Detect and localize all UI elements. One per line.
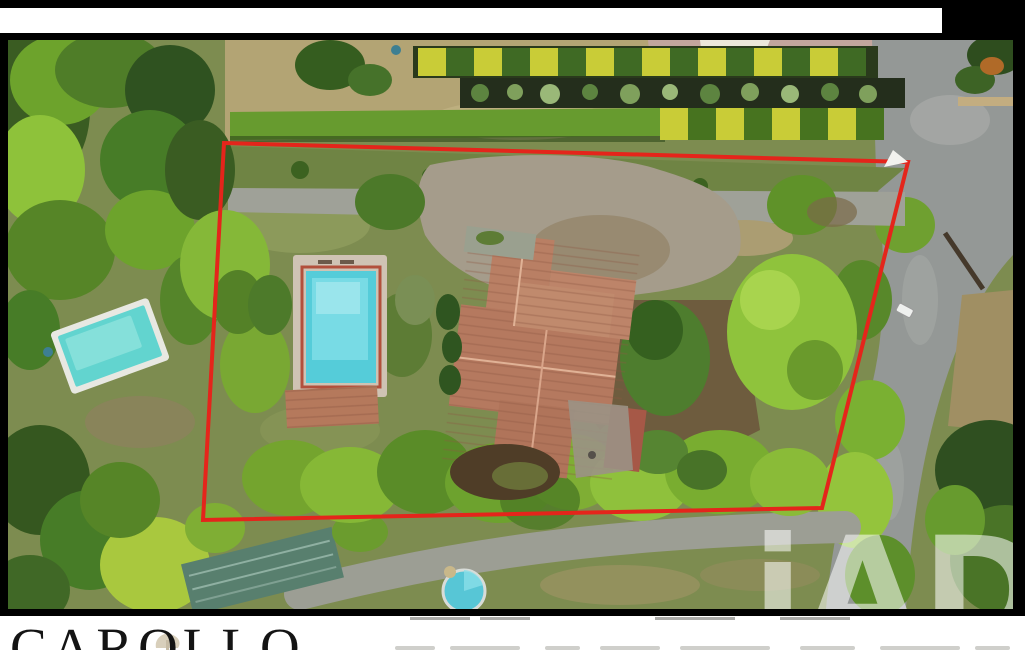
cropped-text-artifact <box>480 617 530 620</box>
top-band-right-black <box>942 8 1025 33</box>
cropped-text-top <box>395 646 435 650</box>
aerial-photo: iAD <box>8 40 1013 609</box>
watermark-logo: iAD <box>752 518 1013 609</box>
photo-left-frame-border <box>0 33 8 616</box>
cropped-text-top <box>450 646 520 650</box>
cropped-text-top <box>975 646 1010 650</box>
main-pool <box>293 255 387 397</box>
photo-top-frame-line <box>0 33 1025 40</box>
bottom-white-band: CAROLLO <box>0 616 1025 650</box>
top-white-band <box>0 8 942 33</box>
agency-name: CAROLLO <box>10 620 305 650</box>
cropped-text-artifact <box>655 617 735 620</box>
cropped-text-artifact <box>780 617 850 620</box>
cropped-text-top <box>680 646 770 650</box>
long-hedge <box>230 108 662 140</box>
top-black-bar <box>0 0 1025 8</box>
photo-bottom-frame-line <box>0 609 1025 616</box>
photo-right-frame-border <box>1013 33 1025 616</box>
pergola-roof <box>285 386 379 429</box>
cropped-text-top <box>800 646 855 650</box>
cropped-text-top <box>880 646 960 650</box>
cropped-text-top <box>545 646 580 650</box>
courtyard <box>568 400 633 478</box>
cropped-text-artifact <box>410 617 470 620</box>
cropped-text-top <box>600 646 660 650</box>
